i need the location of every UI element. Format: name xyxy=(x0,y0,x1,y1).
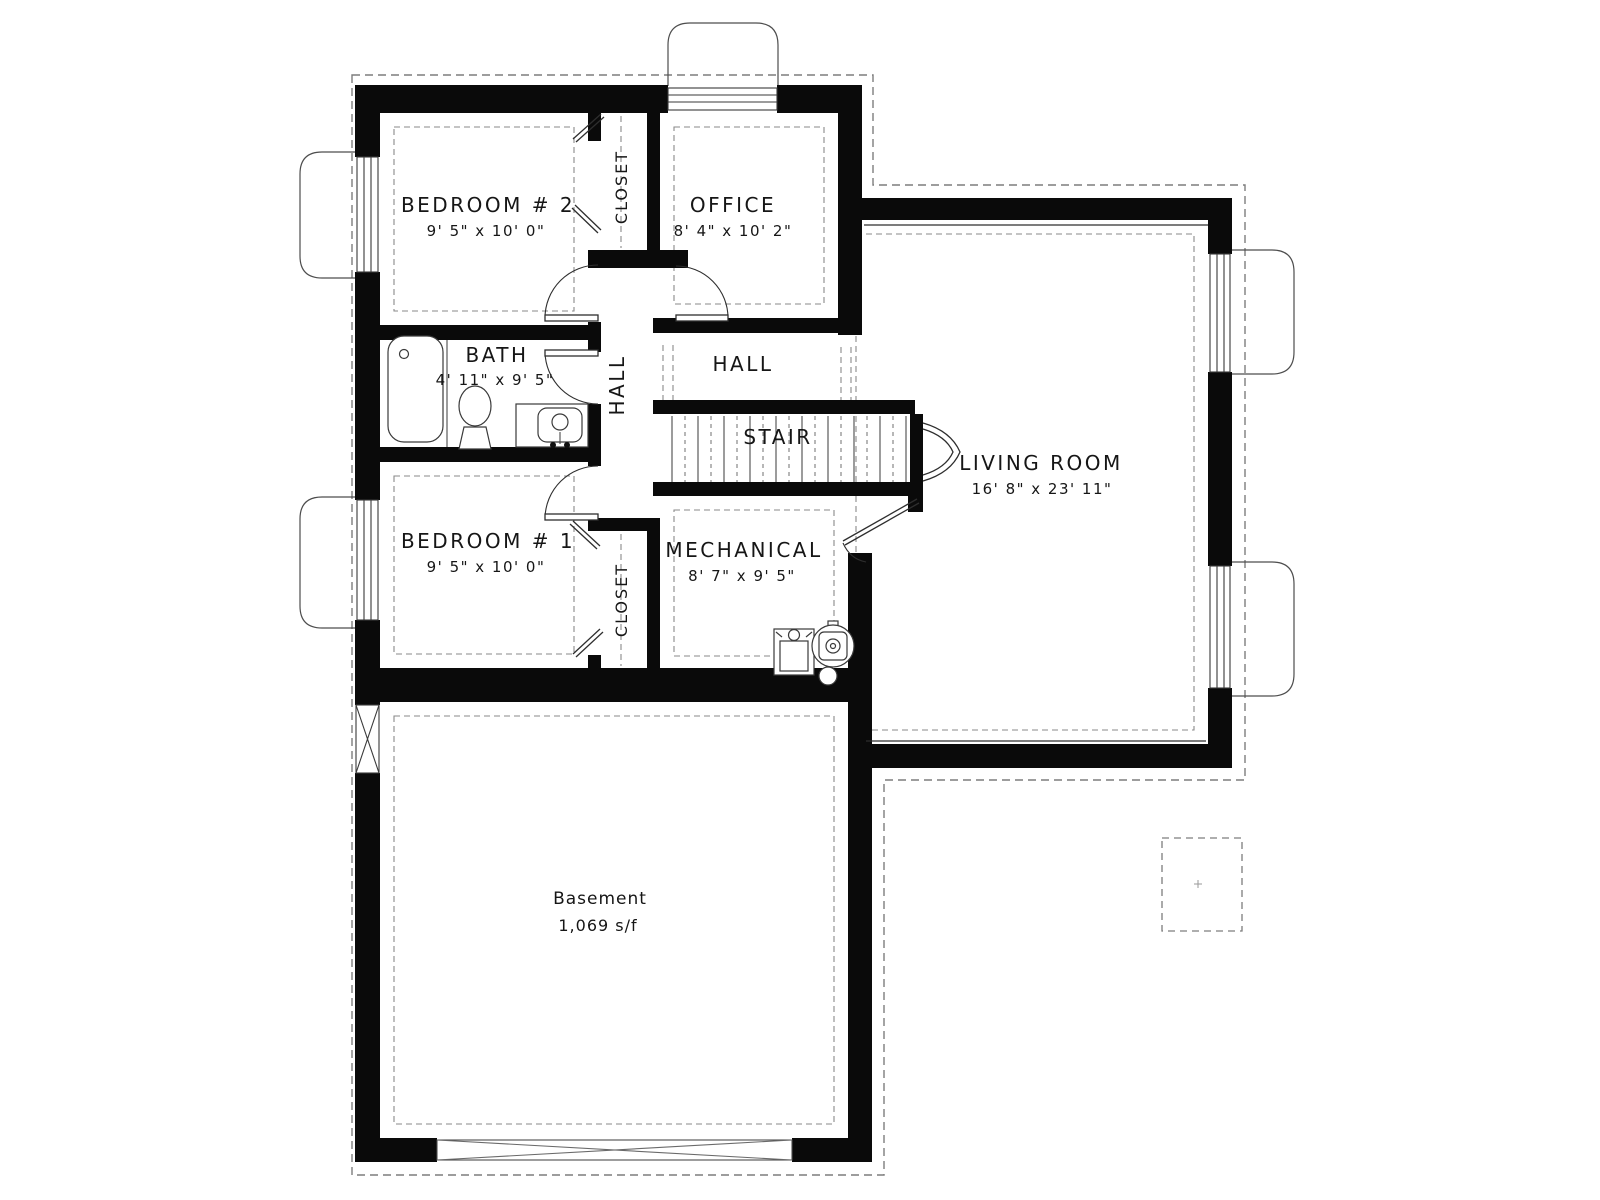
office-label: OFFICE xyxy=(690,193,776,217)
wall-living-top xyxy=(838,198,1232,220)
wall-mechanical-right xyxy=(848,553,872,683)
wall-living-right xyxy=(1208,198,1232,254)
wall-stair-bottom xyxy=(653,482,923,496)
garage-beam-x-brace xyxy=(437,1140,792,1160)
water-heater-icon xyxy=(812,621,854,667)
basement-label: Basement xyxy=(553,889,647,909)
stair-label: STAIR xyxy=(743,425,812,449)
room-inner-dashed-lines xyxy=(394,116,1194,1124)
window-well-left-2 xyxy=(300,497,358,628)
bathtub-icon xyxy=(388,336,447,447)
room-labels: BEDROOM # 2 9' 5" x 10' 0" OFFICE 8' 4" … xyxy=(401,150,1123,935)
window-top-office xyxy=(668,88,777,110)
basement-area: 1,069 s/f xyxy=(558,916,637,935)
hall-vertical-label: HALL xyxy=(605,354,629,415)
windows xyxy=(356,88,1230,1160)
bath-dims: 4' 11" x 9' 5" xyxy=(436,371,555,389)
window-well-top xyxy=(668,23,778,86)
bedroom1-dims: 9' 5" x 10' 0" xyxy=(427,558,546,576)
window-well-right-2 xyxy=(1230,562,1294,696)
window-well-left-1 xyxy=(300,152,358,278)
wall-living-right xyxy=(1208,372,1232,566)
floor-plan-drawing: BEDROOM # 2 9' 5" x 10' 0" OFFICE 8' 4" … xyxy=(0,0,1600,1200)
wall-closet1-right xyxy=(647,531,660,668)
furnace-icon xyxy=(774,629,814,675)
office-door xyxy=(676,266,728,321)
mechanical-label: MECHANICAL xyxy=(665,538,822,562)
bedroom2-label: BEDROOM # 2 xyxy=(401,193,575,217)
wall-basement-right xyxy=(848,668,872,1162)
bedroom1-door xyxy=(545,466,598,520)
wall-left xyxy=(355,85,380,157)
window-left-bedroom1 xyxy=(357,500,378,620)
wall-bottom-right xyxy=(792,1138,872,1162)
wall-closet2-right xyxy=(647,113,660,250)
wall-top-left xyxy=(355,85,668,113)
wall-closet1-left xyxy=(588,655,601,673)
wall-hall-left xyxy=(588,404,601,466)
toilet-icon xyxy=(459,386,491,449)
walls xyxy=(355,85,1232,1162)
living-room-dims: 16' 8" x 23' 11" xyxy=(972,480,1113,498)
bath-label: BATH xyxy=(465,343,528,367)
window-basement-left-x xyxy=(356,705,379,773)
window-right-living-1 xyxy=(1210,254,1230,372)
wall-mech-door-stub xyxy=(908,496,923,512)
bedroom2-dims: 9' 5" x 10' 0" xyxy=(427,222,546,240)
floor-plan-page: BEDROOM # 2 9' 5" x 10' 0" OFFICE 8' 4" … xyxy=(0,0,1600,1200)
wall-left xyxy=(355,773,380,1162)
wall-hall-left xyxy=(588,322,601,352)
sink-vanity-icon xyxy=(516,404,588,448)
mechanical-door xyxy=(843,499,919,562)
window-wells xyxy=(300,23,1294,696)
wall-stair-end xyxy=(910,414,923,482)
mechanical-dims: 8' 7" x 9' 5" xyxy=(688,567,796,585)
stair-door xyxy=(923,423,960,481)
outer-dashed-boundary xyxy=(352,75,1245,1175)
wall-left xyxy=(355,272,380,500)
wall-hall-stair xyxy=(653,400,915,414)
closet-top-label: CLOSET xyxy=(612,150,631,224)
floor-drain-icon xyxy=(819,667,837,685)
office-dims: 8' 4" x 10' 2" xyxy=(674,222,793,240)
wall-hall-head xyxy=(588,250,688,268)
bedroom2-door xyxy=(545,265,598,321)
wall-bedroom2-closet xyxy=(588,113,601,141)
hall-label: HALL xyxy=(712,352,773,376)
living-room-label: LIVING ROOM xyxy=(959,451,1123,475)
window-well-right-1 xyxy=(1230,250,1294,374)
patio-pad-dashed-square xyxy=(1162,838,1242,931)
wall-closet1-top xyxy=(588,518,660,531)
window-right-living-2 xyxy=(1210,566,1230,688)
wall-living-bottom xyxy=(848,744,1232,768)
closet-bottom-label: CLOSET xyxy=(612,563,631,637)
window-left-bedroom2 xyxy=(357,157,378,272)
bedroom2-dashed xyxy=(394,127,574,311)
bedroom1-label: BEDROOM # 1 xyxy=(401,529,575,553)
